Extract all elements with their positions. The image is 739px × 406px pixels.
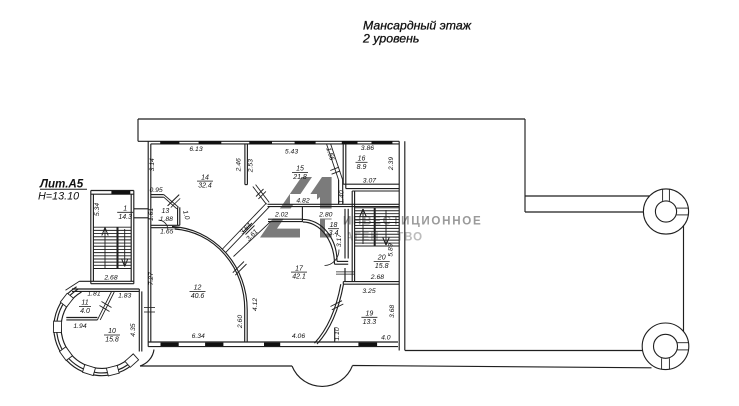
svg-text:4.82: 4.82 — [296, 198, 309, 205]
svg-text:4.35: 4.35 — [130, 323, 137, 336]
svg-text:2.80: 2.80 — [318, 211, 332, 218]
svg-text:4.0: 4.0 — [381, 334, 391, 341]
svg-text:1.40: 1.40 — [339, 190, 346, 203]
svg-text:3.86: 3.86 — [361, 145, 374, 152]
svg-text:21.8: 21.8 — [292, 174, 307, 181]
svg-text:7.27: 7.27 — [148, 272, 155, 285]
svg-text:2.46: 2.46 — [236, 158, 243, 172]
svg-text:Лит.А5: Лит.А5 — [39, 178, 84, 191]
svg-text:1.65: 1.65 — [160, 229, 173, 236]
svg-text:13: 13 — [162, 208, 170, 215]
svg-text:14.3: 14.3 — [118, 214, 132, 221]
svg-text:14: 14 — [201, 174, 209, 181]
svg-text:6.13: 6.13 — [189, 146, 202, 153]
svg-text:3.14: 3.14 — [149, 158, 156, 171]
svg-text:2 уровень: 2 уровень — [362, 31, 419, 45]
svg-text:32.4: 32.4 — [198, 183, 212, 190]
svg-text:40.6: 40.6 — [191, 293, 205, 300]
svg-text:4.06: 4.06 — [292, 333, 305, 340]
svg-text:1.81: 1.81 — [87, 291, 100, 298]
svg-text:3.07: 3.07 — [363, 177, 376, 184]
svg-text:19: 19 — [366, 311, 374, 318]
svg-text:2.02: 2.02 — [274, 211, 288, 218]
svg-text:1.10: 1.10 — [334, 327, 341, 340]
svg-text:6.34: 6.34 — [192, 333, 205, 340]
svg-text:1.94: 1.94 — [73, 323, 86, 330]
svg-text:2.39: 2.39 — [388, 157, 395, 171]
svg-text:8.9: 8.9 — [357, 164, 367, 171]
svg-text:1: 1 — [123, 206, 127, 213]
svg-text:15: 15 — [296, 166, 304, 173]
svg-text:4.12: 4.12 — [252, 298, 259, 311]
svg-text:13.3: 13.3 — [363, 319, 377, 326]
svg-text:15.8: 15.8 — [375, 263, 389, 270]
svg-text:16: 16 — [358, 156, 366, 163]
svg-text:0.95: 0.95 — [149, 187, 162, 194]
svg-text:3.17: 3.17 — [336, 234, 343, 247]
svg-text:5.89: 5.89 — [388, 243, 395, 256]
svg-text:20: 20 — [377, 255, 386, 262]
svg-text:5.34: 5.34 — [94, 203, 101, 216]
svg-text:42.1: 42.1 — [292, 274, 306, 281]
svg-text:17: 17 — [295, 265, 304, 272]
svg-text:1.88: 1.88 — [160, 216, 173, 223]
svg-text:2.60: 2.60 — [237, 315, 244, 329]
svg-text:3.68: 3.68 — [389, 305, 396, 318]
svg-text:2.68: 2.68 — [370, 274, 384, 281]
svg-text:5.43: 5.43 — [285, 148, 298, 155]
svg-text:1.61: 1.61 — [148, 208, 155, 221]
svg-text:11: 11 — [81, 300, 88, 307]
svg-text:H=13.10: H=13.10 — [38, 191, 79, 203]
svg-text:12: 12 — [194, 285, 202, 292]
svg-text:10: 10 — [108, 328, 116, 335]
svg-text:3.25: 3.25 — [362, 288, 375, 295]
svg-text:2.53: 2.53 — [248, 159, 255, 173]
svg-text:4.0: 4.0 — [80, 308, 90, 315]
svg-text:18: 18 — [330, 222, 338, 229]
svg-text:1.83: 1.83 — [118, 292, 131, 299]
svg-text:15.8: 15.8 — [105, 337, 119, 344]
svg-text:2.68: 2.68 — [103, 275, 117, 282]
